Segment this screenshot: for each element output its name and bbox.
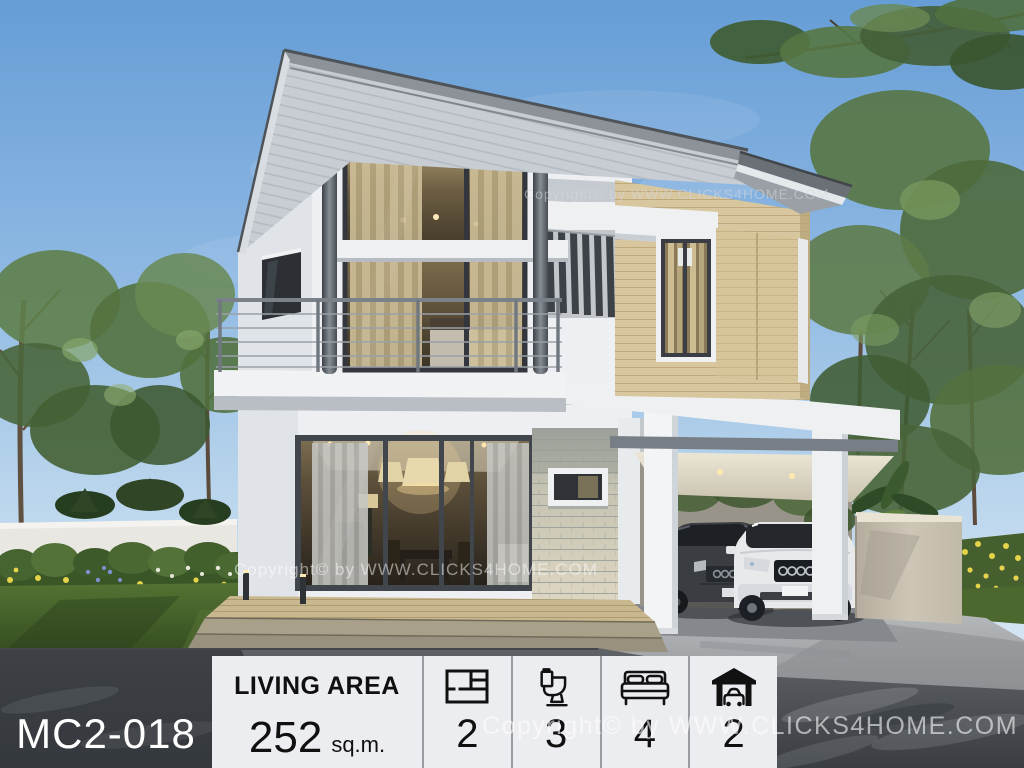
side-slit-window [262,248,301,320]
stat-bedrooms-value: 4 [634,714,656,754]
info-bar: LIVING AREA 252 sq.m. 2 3 [212,656,777,768]
stat-bathrooms-value: 3 [545,714,567,754]
living-area-section: LIVING AREA 252 sq.m. [212,656,422,768]
floorplan-icon [443,666,491,710]
stone-wall-window [548,468,608,509]
sliding-glass-doors [298,430,532,588]
garage-icon [711,666,757,710]
stat-bedrooms: 4 [600,656,689,768]
wood-wing-window [656,234,716,362]
house-listing-image: Copyright© by WWW.CLICKS4HOME.COM Copyri… [0,0,1024,768]
stat-garage: 2 [688,656,777,768]
living-area-label: LIVING AREA [234,672,400,701]
stat-floors-value: 2 [456,714,478,754]
house-render-scene [0,0,1024,768]
living-area-value: 252 [249,713,322,763]
model-code: MC2-018 [0,656,212,768]
toilet-icon [535,666,577,710]
stone-accent-wall [532,428,618,604]
bed-icon [619,666,671,710]
stat-garage-value: 2 [723,714,745,754]
gate-wall-right [856,512,962,624]
living-area-unit: sq.m. [331,732,385,758]
stat-bathrooms: 3 [511,656,600,768]
wood-shutter-panel [716,228,808,384]
stat-floors: 2 [422,656,511,768]
